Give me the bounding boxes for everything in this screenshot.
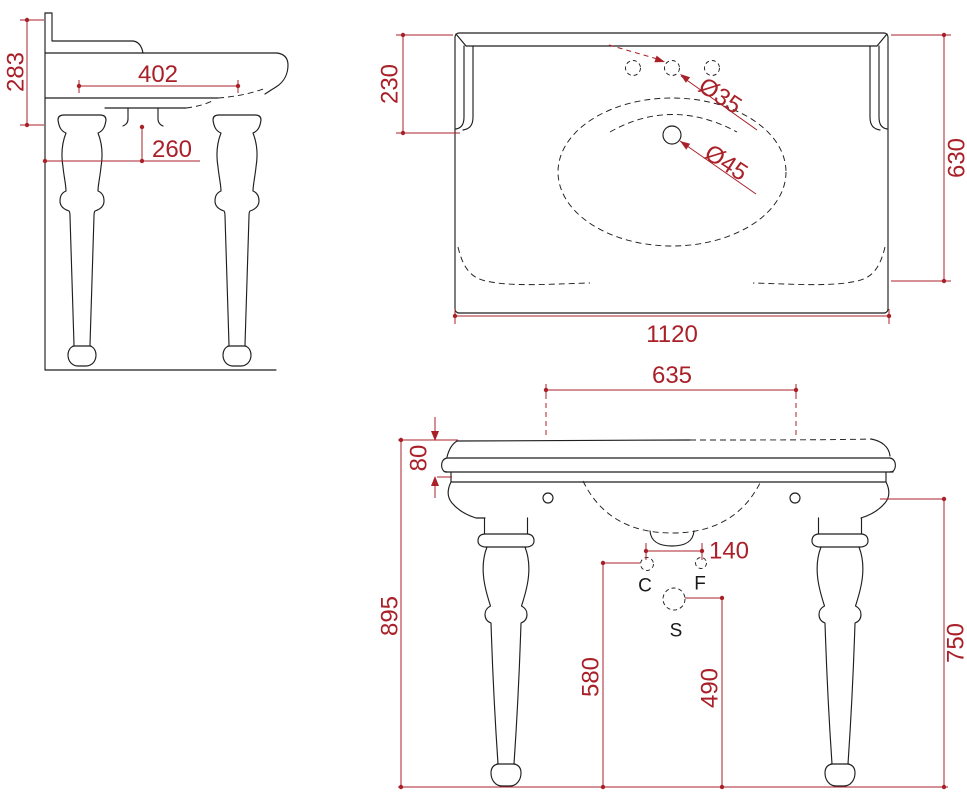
dim-230-label: 230 [377, 64, 404, 104]
ground-line [398, 785, 948, 789]
dim-402-label: 402 [138, 61, 178, 88]
hidden-underside-curve [186, 100, 214, 108]
fixing-hole-right [790, 493, 800, 503]
dim-230: 230 [377, 33, 461, 135]
faucet-hole-left [626, 61, 641, 76]
front-view: C F S 635 80 89 [377, 362, 967, 789]
basin-bowl-hidden-arc [583, 481, 761, 533]
counter-top-edge-hidden [690, 439, 871, 440]
label-s: S [670, 621, 683, 642]
rim-ledge [451, 472, 886, 482]
dim-260: 260 [43, 125, 200, 163]
dim-140-label: 140 [709, 538, 749, 565]
basin-rim-ellipse [558, 98, 786, 246]
dim-490-label: 490 [697, 668, 724, 708]
supply-hole-f [696, 558, 707, 569]
front-scallop-left [458, 247, 590, 285]
dim-dia35: Ø35 [609, 45, 757, 130]
front-scallop-right [753, 247, 885, 285]
dim-283: 283 [3, 18, 45, 127]
waste-hole-s [663, 588, 685, 610]
corner-miters [456, 34, 887, 46]
backsplash-profile [45, 13, 143, 53]
dim-895: 895 [377, 438, 404, 789]
drain-hole [663, 126, 681, 144]
dim-dia45: Ø45 [680, 139, 756, 194]
dim-580: 580 [578, 561, 641, 787]
dim-635: 635 [544, 362, 798, 438]
left-splash-rail [456, 46, 473, 130]
counter-corner-left [447, 441, 457, 457]
technical-drawing-sheet: 283 402 260 [0, 0, 967, 800]
dim-630: 630 [891, 33, 967, 283]
dim-260-label: 260 [152, 136, 192, 163]
drain-boss [650, 531, 694, 546]
apron-right-profile [861, 482, 889, 518]
dim-402: 402 [77, 61, 240, 93]
top-view: 230 630 1120 Ø35 Ø45 [377, 33, 967, 348]
label-c: C [638, 576, 652, 597]
dim-580-label: 580 [578, 657, 605, 697]
dim-630-label: 630 [944, 138, 967, 178]
fixing-hole-left [543, 493, 553, 503]
dim-140: 140 [644, 538, 749, 565]
counter-outline [455, 33, 888, 313]
washbasin-console-drawing: 283 402 260 [0, 0, 967, 800]
basin-inner-arc [610, 115, 737, 133]
apron-left-profile [448, 482, 485, 518]
dim-1120: 1120 [453, 309, 891, 348]
side-leg-front [58, 115, 106, 366]
counter-top-edge [457, 440, 690, 441]
side-view: 283 402 260 [3, 13, 289, 370]
dim-490: 490 [685, 596, 724, 787]
dim-dia35-label: Ø35 [694, 72, 747, 119]
bullnose-edge [265, 53, 288, 94]
label-f: F [694, 574, 706, 595]
front-leg-right [812, 518, 868, 786]
side-leg-back [213, 115, 261, 366]
right-splash-rail [870, 46, 887, 130]
dim-895-label: 895 [377, 596, 404, 636]
counter-corner-right [871, 439, 890, 456]
dim-283-label: 283 [3, 52, 30, 92]
rim-band-right-cap [890, 458, 895, 472]
hidden-edge-curve [218, 88, 266, 98]
dim-750: 750 [880, 497, 967, 789]
dim-80-label: 80 [406, 445, 433, 472]
front-leg-left [478, 518, 534, 786]
rim-band-left-cap [442, 458, 447, 472]
faucet-hole-center [665, 61, 680, 76]
dim-635-label: 635 [652, 362, 692, 389]
dim-750-label: 750 [943, 623, 967, 663]
dim-1120-label: 1120 [646, 321, 698, 348]
dim-dia45-label: Ø45 [700, 139, 753, 186]
supply-hole-c [641, 558, 654, 571]
drain-trap [123, 108, 163, 126]
